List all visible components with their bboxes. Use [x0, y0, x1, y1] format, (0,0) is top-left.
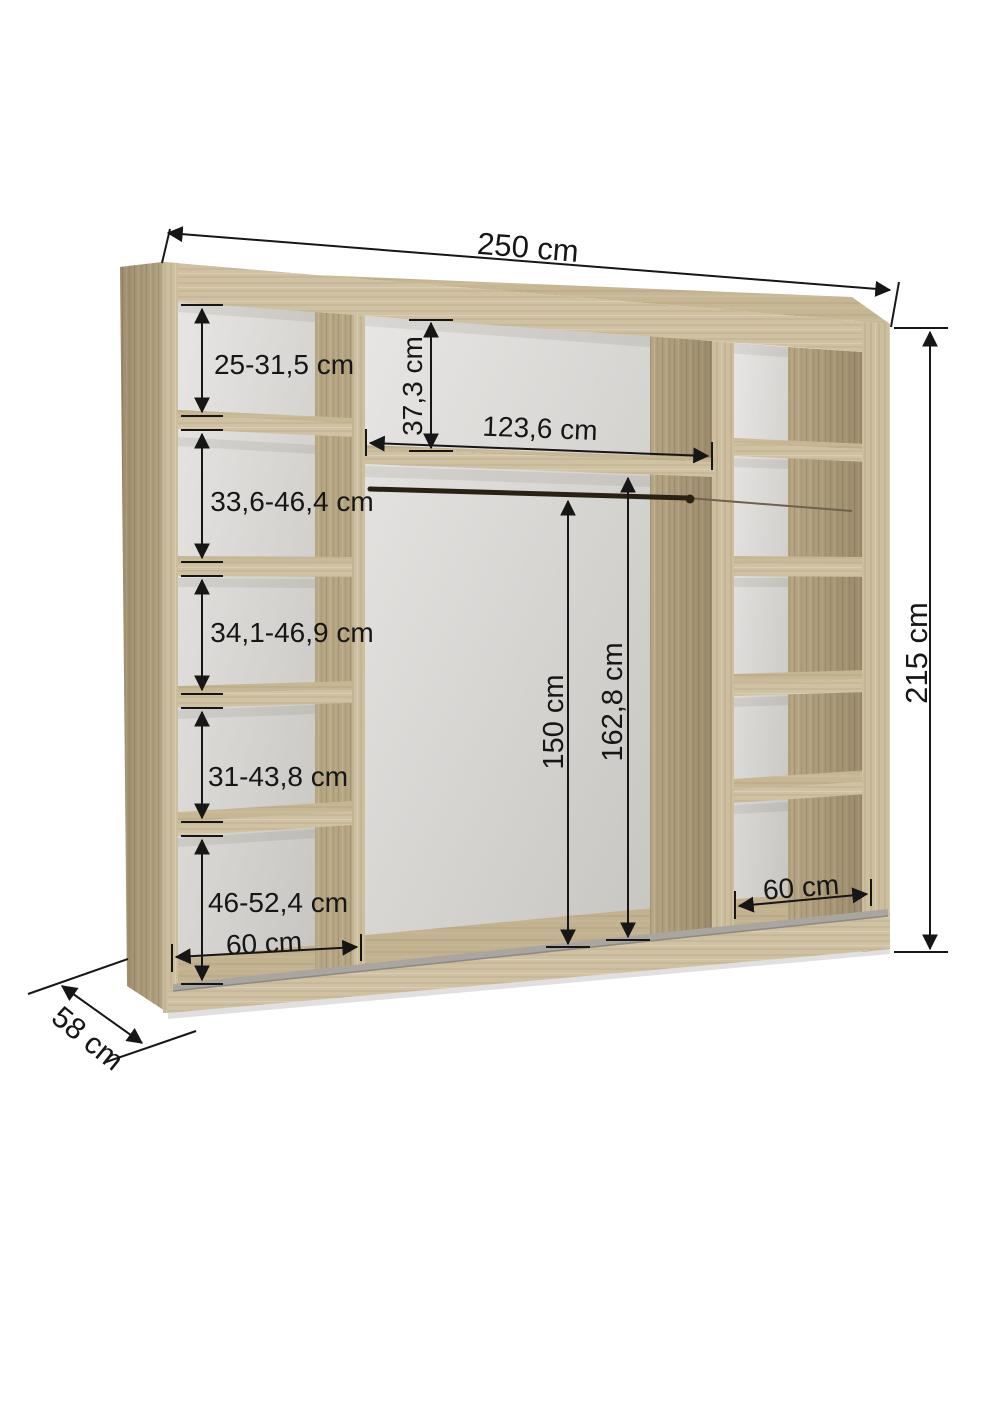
right-shelf-2	[734, 563, 868, 577]
label-middle-inner-height: 162,8 cm	[597, 642, 629, 761]
right-stile	[862, 322, 890, 952]
label-middle-top-shelf-height: 37,3 cm	[397, 336, 428, 436]
left-stile	[163, 262, 178, 1013]
label-left-column-width: 60 cm	[225, 926, 303, 961]
wardrobe-diagram: 250 cm 215 cm 58 cm 25-31,5 cm 33,6-46,4…	[0, 0, 992, 1403]
right-wall-side-shade	[788, 347, 862, 924]
back-wall-right-column	[734, 343, 788, 899]
label-total-height: 215 cm	[899, 602, 934, 704]
label-left-compartment-2: 33,6-46,4 cm	[210, 486, 373, 517]
wardrobe-side-panel-shade	[120, 262, 168, 1013]
label-rod-height: 150 cm	[538, 674, 570, 769]
label-left-compartment-5: 46-52,4 cm	[208, 887, 348, 918]
label-left-compartment-1: 25-31,5 cm	[214, 349, 354, 380]
divider-right-side-shade	[650, 336, 712, 938]
divider-right-front-edge	[712, 341, 734, 931]
label-middle-inner-width: 123,6 cm	[482, 411, 598, 446]
label-right-column-width: 60 cm	[762, 869, 840, 906]
left-shelf-2	[178, 562, 352, 577]
label-left-compartment-4: 31-43,8 cm	[208, 761, 348, 792]
rod-bracket	[686, 495, 695, 504]
label-left-compartment-3: 34,1-46,9 cm	[210, 617, 373, 648]
